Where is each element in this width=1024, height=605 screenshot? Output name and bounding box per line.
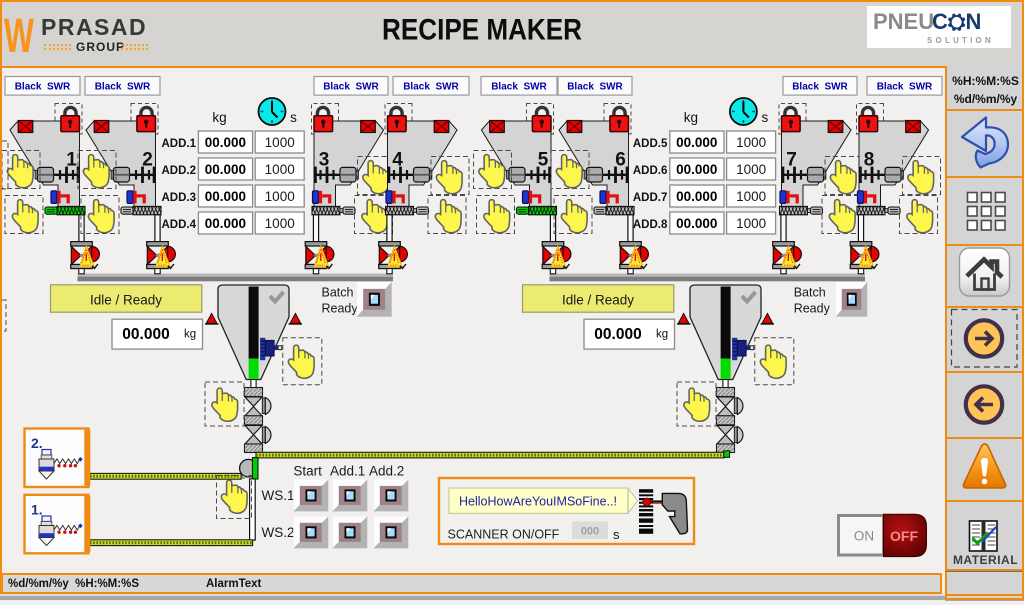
svg-text:ADD.5: ADD.5	[633, 138, 668, 150]
svg-text:00.000: 00.000	[594, 326, 641, 343]
svg-text:Idle / Ready: Idle / Ready	[90, 293, 162, 308]
svg-text:Add.2: Add.2	[369, 464, 404, 479]
svg-text:ADD.1: ADD.1	[161, 138, 196, 150]
svg-text:00.000: 00.000	[205, 216, 246, 231]
svg-text:OFF: OFF	[890, 528, 918, 544]
svg-text:ADD.7: ADD.7	[633, 192, 668, 204]
svg-text:Ready: Ready	[322, 302, 359, 316]
svg-text:00.000: 00.000	[205, 189, 246, 204]
svg-text:ADD.6: ADD.6	[633, 165, 668, 177]
svg-text:Black SWR: Black SWR	[95, 82, 151, 93]
svg-text:kg: kg	[184, 329, 196, 341]
svg-text:00.000: 00.000	[122, 326, 169, 343]
svg-text:RECIPE MAKER: RECIPE MAKER	[382, 14, 582, 47]
svg-text:ADD.2: ADD.2	[161, 165, 196, 177]
svg-text:00.000: 00.000	[676, 162, 717, 177]
svg-text:Batch: Batch	[794, 286, 826, 300]
svg-text:7: 7	[786, 150, 797, 171]
svg-text:1000: 1000	[736, 189, 766, 204]
svg-text:kg: kg	[212, 110, 226, 125]
svg-text:8: 8	[864, 150, 875, 171]
svg-text:5: 5	[538, 150, 549, 171]
svg-text:00.000: 00.000	[676, 216, 717, 231]
svg-text:00.000: 00.000	[205, 162, 246, 177]
svg-text:ADD.8: ADD.8	[633, 219, 668, 231]
svg-text:Start: Start	[293, 464, 322, 479]
svg-text:WS.1: WS.1	[262, 488, 295, 503]
svg-text:000: 000	[581, 526, 599, 538]
svg-text:1000: 1000	[265, 162, 295, 177]
svg-text:1: 1	[66, 150, 77, 171]
svg-text:1000: 1000	[736, 162, 766, 177]
svg-text:1.: 1.	[31, 502, 43, 518]
svg-text:s: s	[762, 110, 769, 125]
svg-text:6: 6	[615, 150, 626, 171]
svg-text:SCANNER ON/OFF: SCANNER ON/OFF	[448, 528, 560, 542]
svg-text:WS.2: WS.2	[262, 525, 295, 540]
svg-text:Batch: Batch	[322, 286, 354, 300]
svg-text:4: 4	[392, 150, 403, 171]
svg-text:00.000: 00.000	[205, 135, 246, 150]
svg-text:Black SWR: Black SWR	[877, 82, 933, 93]
svg-text:Add.1: Add.1	[330, 464, 365, 479]
svg-text:HelloHowAreYouIMSoFine..!: HelloHowAreYouIMSoFine..!	[459, 495, 617, 509]
svg-text:Black SWR: Black SWR	[403, 82, 459, 93]
svg-text:00.000: 00.000	[676, 135, 717, 150]
svg-text:1000: 1000	[265, 189, 295, 204]
svg-text:2: 2	[142, 150, 153, 171]
svg-text:ON: ON	[854, 529, 874, 544]
svg-text:kg: kg	[684, 110, 698, 125]
svg-text:Black SWR: Black SWR	[567, 82, 623, 93]
svg-text:00.000: 00.000	[676, 189, 717, 204]
svg-text:1000: 1000	[736, 135, 766, 150]
svg-text:ADD.4: ADD.4	[161, 219, 196, 231]
svg-text:s: s	[613, 527, 620, 542]
svg-text:kg: kg	[656, 329, 668, 341]
svg-text:Black SWR: Black SWR	[491, 82, 547, 93]
svg-text:Black SWR: Black SWR	[792, 82, 848, 93]
svg-text:Black SWR: Black SWR	[15, 82, 71, 93]
svg-text:Black SWR: Black SWR	[323, 82, 379, 93]
svg-text:Ready: Ready	[794, 302, 831, 316]
svg-text:2.: 2.	[31, 435, 43, 451]
svg-text:1000: 1000	[265, 216, 295, 231]
svg-text:Idle / Ready: Idle / Ready	[562, 293, 634, 308]
svg-text:1000: 1000	[736, 216, 766, 231]
svg-text:ADD.3: ADD.3	[161, 192, 196, 204]
svg-text:s: s	[290, 110, 297, 125]
svg-text:3: 3	[319, 150, 330, 171]
svg-text:1000: 1000	[265, 135, 295, 150]
